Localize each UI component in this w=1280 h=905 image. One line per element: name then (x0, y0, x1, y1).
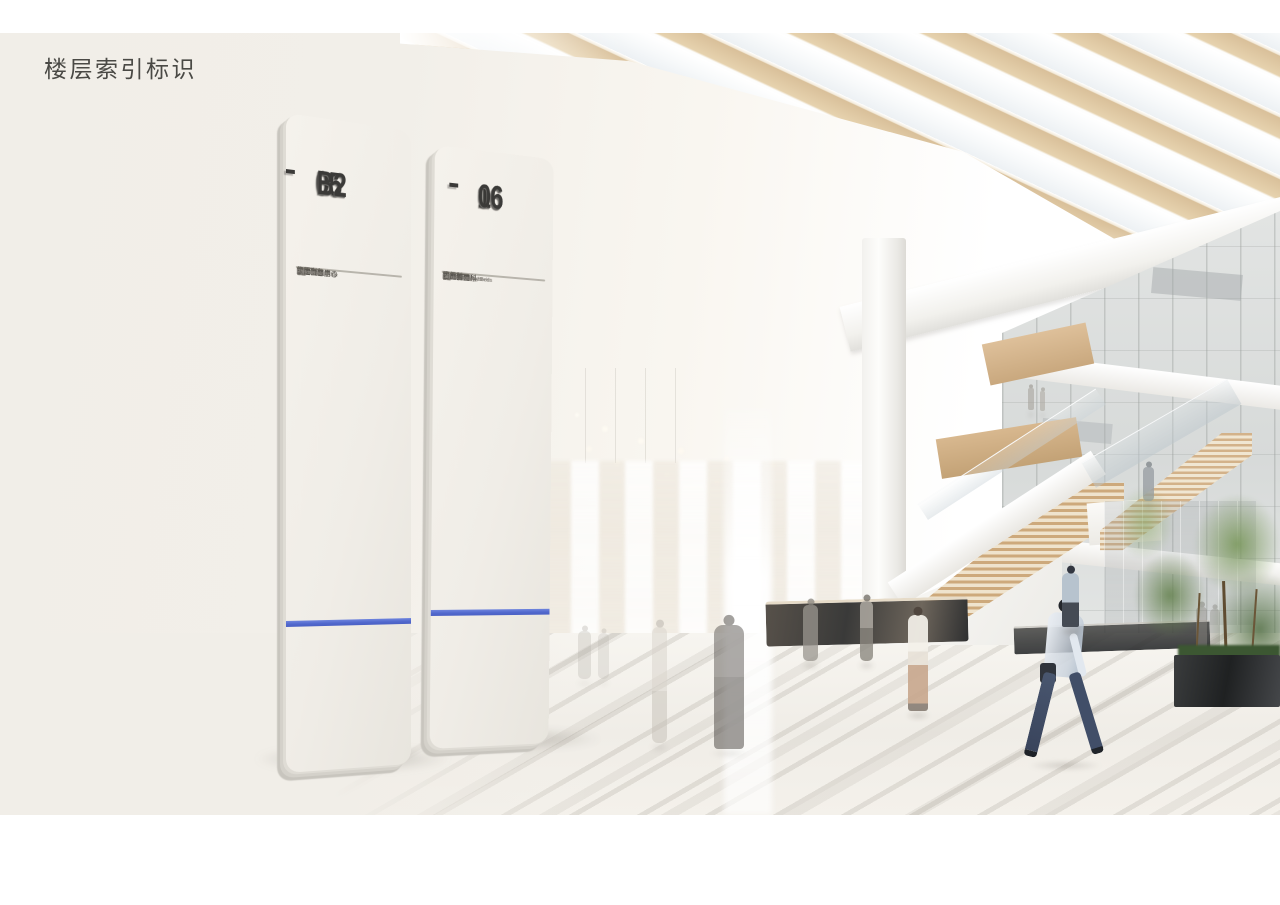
floor-directory: 05儿科VIP门诊行政办公生殖中心PedsVIP ClinicAdminRepr… (296, 266, 402, 278)
man-near-stairs (1062, 573, 1079, 627)
person-silhouette (598, 633, 609, 679)
walking-woman (908, 615, 928, 711)
hanging-cables (585, 368, 695, 463)
floor-directory: 16神经科康复NeurologyRehab Beds15肾内科泌尿外科Nephr… (442, 271, 545, 282)
window-reflection (1151, 267, 1243, 301)
directory-row-B2: B2车库Parking (297, 267, 323, 276)
person-on-walkway (1028, 388, 1034, 410)
person-on-walkway (1040, 391, 1045, 411)
person-silhouette (652, 627, 667, 743)
range-dash (286, 169, 295, 174)
range-bottom-number: 06 (478, 180, 503, 214)
ceiling-lights (575, 413, 579, 417)
person-at-desk (803, 605, 818, 661)
floor-range: 16 06 (449, 177, 497, 182)
marble-planter (1174, 655, 1280, 707)
directory-row-06: 06妇产科OB (443, 272, 470, 285)
floor-index-sign-05-b2: 05 B2 05儿科VIP门诊行政办公生殖中心PedsVIP ClinicAdm… (286, 113, 411, 773)
person-silhouette (714, 625, 744, 749)
range-dash (449, 183, 458, 187)
accent-stripe (431, 609, 550, 616)
floor-range: 05 B2 (286, 163, 336, 169)
accent-stripe (286, 618, 411, 627)
atrium-rendering: 05 B2 05儿科VIP门诊行政办公生殖中心PedsVIP ClinicAdm… (0, 33, 1280, 815)
person-at-desk (860, 601, 873, 661)
person-silhouette (578, 631, 591, 679)
page-title: 楼层索引标识 (44, 50, 197, 84)
range-bottom-number: B2 (317, 167, 346, 202)
floor-index-sign-16-06: 16 06 16神经科康复NeurologyRehab Beds15肾内科泌尿外… (430, 145, 554, 749)
